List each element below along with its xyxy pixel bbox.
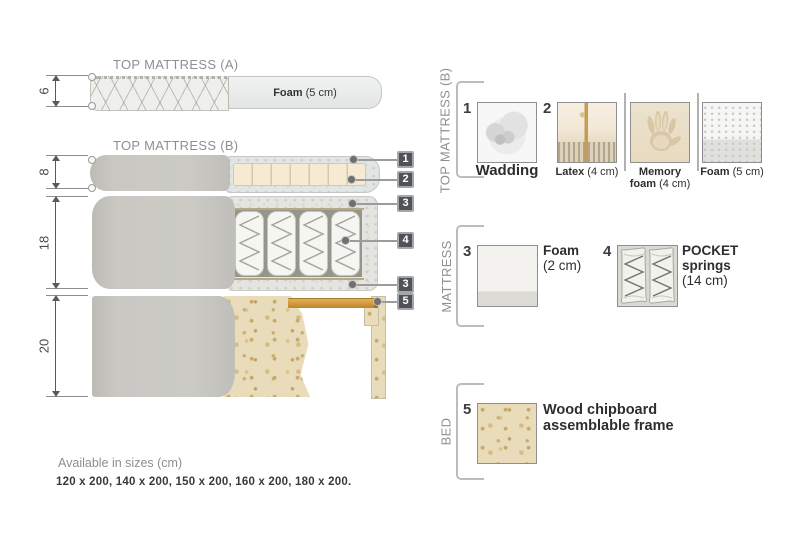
callout-dot: [348, 280, 357, 289]
arrow-up-icon: [52, 196, 60, 202]
foam-5cm-swatch: [702, 102, 762, 163]
callout-line: [345, 240, 397, 242]
callout-4: 4: [397, 232, 414, 249]
quilted-cover-section: [90, 76, 229, 111]
callout-3-top: 3: [397, 195, 414, 212]
chipboard-swatch: [477, 403, 537, 464]
arrow-down-icon: [52, 101, 60, 107]
dimension-value: 18: [37, 232, 52, 254]
callout-dot: [373, 297, 382, 306]
legend-num-4: 4: [603, 243, 611, 260]
dimension-20cm: 20: [36, 295, 88, 397]
arrow-down-icon: [52, 283, 60, 289]
legend-num-1: 1: [463, 100, 471, 117]
mattress-infographic: 6 8 18 20 TOP MATTRESS (A) Foam (5 cm) T…: [0, 0, 800, 533]
callout-2: 2: [397, 171, 414, 188]
callout-dot: [348, 199, 357, 208]
piping-dot: [88, 73, 96, 81]
callout-line: [352, 203, 397, 205]
foam-5cm-caption: Foam (5 cm): [692, 166, 772, 178]
callout-dot: [341, 236, 350, 245]
fabric-cover-mattress: [92, 196, 235, 289]
legend-num-3: 3: [463, 243, 471, 260]
foam-section-a: Foam (5 cm): [228, 76, 382, 109]
callout-5: 5: [397, 293, 414, 310]
legend-num-2: 2: [543, 100, 551, 117]
chipboard-label: Wood chipboard assemblable frame: [543, 402, 674, 434]
bed-chipboard-panel: [224, 296, 312, 397]
sizes-title: Available in sizes (cm): [58, 456, 182, 470]
legend-section-bed-label: BED: [439, 416, 454, 448]
foam-label: Foam (5 cm): [273, 87, 337, 99]
arrow-up-icon: [52, 295, 60, 301]
legend-divider: [697, 93, 699, 171]
wadding-swatch: [477, 102, 537, 163]
callout-dot: [349, 155, 358, 164]
pocket-springs-label: POCKET springs (14 cm): [682, 243, 738, 288]
memory-foam-caption: Memory foam (4 cm): [620, 166, 700, 190]
latex-caption: Latex (4 cm): [547, 166, 627, 178]
fabric-cover-top-b: [90, 155, 230, 191]
dimension-6cm: 6: [36, 75, 88, 107]
dimension-value: 8: [37, 161, 52, 183]
wadding-caption: Wadding: [463, 165, 551, 177]
sizes-list: 120 x 200, 140 x 200, 150 x 200, 160 x 2…: [56, 476, 351, 488]
foam-2cm-swatch: [477, 245, 538, 307]
callout-dot: [347, 175, 356, 184]
top-mattress-a-title: TOP MATTRESS (A): [113, 57, 238, 72]
bed-fabric-front: [92, 296, 235, 397]
latex-layer-segments: [233, 163, 366, 186]
callout-1: 1: [397, 151, 414, 168]
top-mattress-b-title: TOP MATTRESS (B): [113, 138, 238, 153]
legend-section-top-b-label: TOP MATTRESS (B): [438, 68, 453, 194]
wood-slat: [288, 298, 378, 308]
arrow-down-icon: [52, 183, 60, 189]
piping-dot: [88, 102, 96, 110]
foam-edge-line: [234, 278, 364, 280]
callout-line: [351, 179, 397, 181]
legend-num-5: 5: [463, 401, 471, 418]
callout-line: [352, 284, 397, 286]
dimension-18cm: 18: [36, 196, 88, 289]
memory-foam-swatch: [630, 102, 690, 163]
pocket-springs-swatch: [617, 245, 678, 307]
arrow-up-icon: [52, 155, 60, 161]
arrow-up-icon: [52, 75, 60, 81]
callout-3-bottom: 3: [397, 276, 414, 293]
latex-swatch: [557, 102, 617, 163]
dimension-value: 20: [37, 335, 52, 357]
piping-dot: [88, 156, 96, 164]
foam-2cm-label: Foam (2 cm): [543, 243, 581, 273]
arrow-down-icon: [52, 391, 60, 397]
dimension-line: [55, 297, 56, 395]
dimension-line: [55, 198, 56, 287]
legend-section-mattress-label: MATTRESS: [439, 239, 454, 314]
dimension-value: 6: [37, 80, 52, 102]
dimension-8cm: 8: [36, 155, 88, 189]
slat-support-bracket: [364, 307, 379, 326]
legend-divider: [624, 93, 626, 171]
piping-dot: [88, 184, 96, 192]
callout-line: [353, 159, 397, 161]
